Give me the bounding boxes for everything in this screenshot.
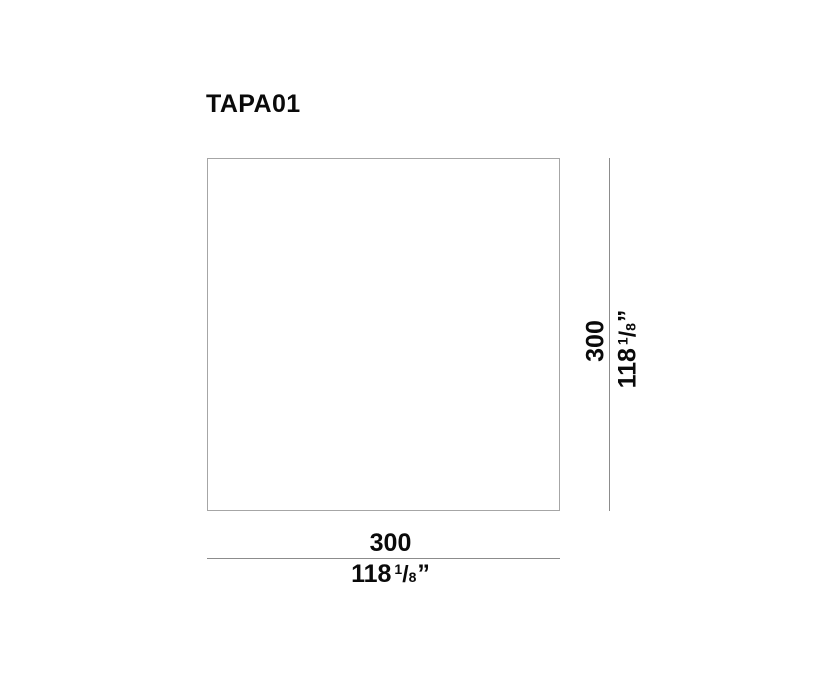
- height-metric-label: 300: [584, 320, 609, 362]
- height-imperial-fraction-denominator: 8: [623, 323, 639, 331]
- height-metric-value: 300: [582, 320, 610, 362]
- width-metric-value: 300: [370, 529, 412, 557]
- width-inch-mark: ”: [417, 560, 430, 588]
- height-imperial-whole: 118: [614, 348, 642, 388]
- width-imperial-label: 1181/8”: [214, 562, 567, 587]
- height-imperial-fraction-numerator: 1: [615, 337, 631, 345]
- width-imperial-whole: 118: [351, 560, 391, 588]
- height-inch-mark: ”: [614, 310, 642, 323]
- width-imperial-fraction-numerator: 1: [394, 561, 402, 577]
- width-imperial-fraction-denominator: 8: [409, 569, 417, 585]
- height-imperial-label: 1181/8”: [616, 310, 641, 389]
- height-fraction-slash: /: [615, 331, 641, 337]
- panel-outline: [207, 158, 560, 511]
- product-title: TAPA01: [206, 92, 301, 117]
- drawing-canvas: TAPA01 300 1181/8” 300 1181/8”: [0, 0, 840, 679]
- width-metric-label: 300: [214, 531, 567, 556]
- width-dimension-line: [207, 558, 560, 559]
